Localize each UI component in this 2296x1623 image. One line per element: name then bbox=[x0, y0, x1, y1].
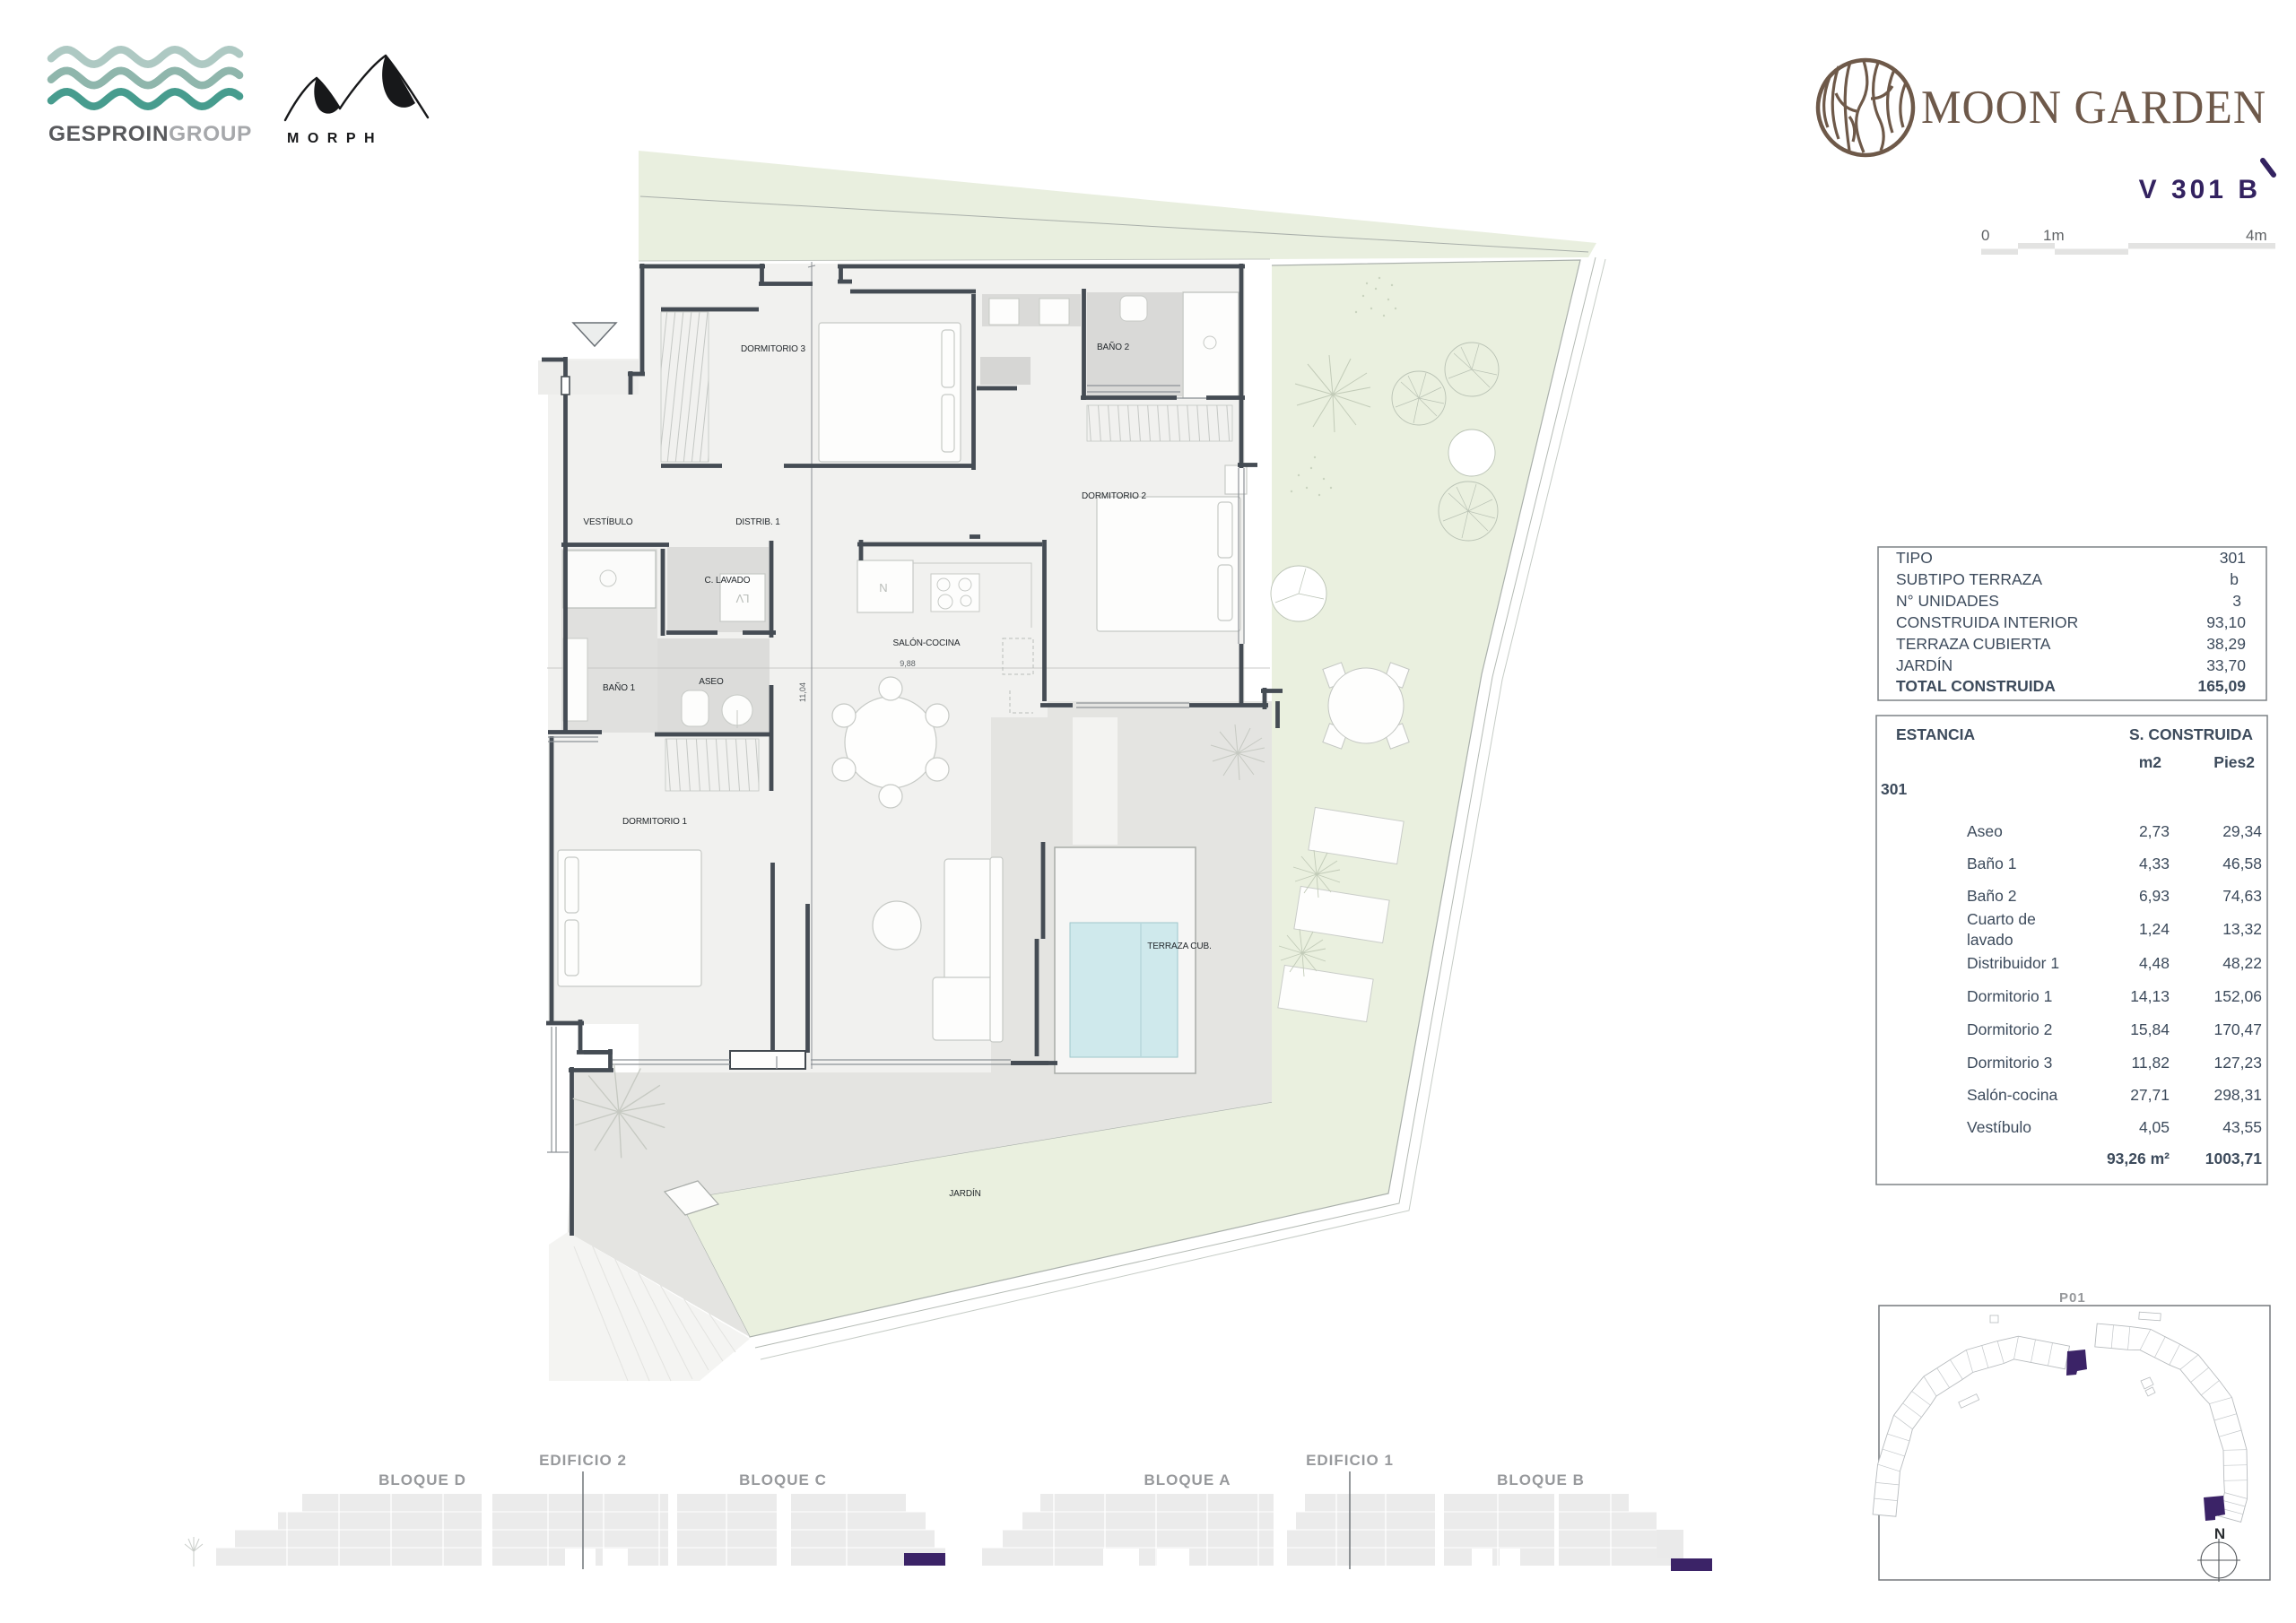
svg-text:P01: P01 bbox=[2059, 1290, 2086, 1306]
svg-text:2,73: 2,73 bbox=[2139, 822, 2170, 840]
svg-text:13,32: 13,32 bbox=[2222, 920, 2262, 938]
svg-text:DORMITORIO 2: DORMITORIO 2 bbox=[1082, 491, 1146, 501]
svg-text:MORPH: MORPH bbox=[287, 131, 383, 146]
svg-text:27,71: 27,71 bbox=[2130, 1086, 2170, 1104]
svg-text:15,84: 15,84 bbox=[2130, 1020, 2170, 1038]
svg-text:N: N bbox=[879, 581, 887, 595]
svg-text:38,29: 38,29 bbox=[2206, 635, 2246, 653]
svg-text:TERRAZA CUBIERTA: TERRAZA CUBIERTA bbox=[1896, 635, 2051, 653]
svg-text:1m: 1m bbox=[2043, 227, 2065, 244]
svg-text:301: 301 bbox=[2220, 549, 2246, 567]
svg-text:BLOQUE C: BLOQUE C bbox=[739, 1471, 827, 1488]
svg-text:C. LAVADO: C. LAVADO bbox=[705, 576, 751, 586]
svg-text:EDIFICIO 1: EDIFICIO 1 bbox=[1306, 1452, 1394, 1469]
svg-text:N° UNIDADES: N° UNIDADES bbox=[1896, 592, 1999, 610]
svg-text:SUBTIPO TERRAZA: SUBTIPO TERRAZA bbox=[1896, 570, 2042, 588]
svg-text:Distribuidor 1: Distribuidor 1 bbox=[1967, 954, 2059, 972]
svg-text:GESPROINGROUP: GESPROINGROUP bbox=[48, 122, 252, 146]
svg-text:33,70: 33,70 bbox=[2206, 656, 2246, 674]
svg-text:Vestíbulo: Vestíbulo bbox=[1967, 1118, 2031, 1136]
svg-text:Cuarto de: Cuarto de bbox=[1967, 910, 2036, 928]
svg-text:TIPO: TIPO bbox=[1896, 549, 1933, 567]
svg-text:Dormitorio 2: Dormitorio 2 bbox=[1967, 1020, 2052, 1038]
svg-text:1,24: 1,24 bbox=[2139, 920, 2170, 938]
svg-text:JARDÍN: JARDÍN bbox=[1896, 656, 1952, 674]
svg-text:BAÑO 2: BAÑO 2 bbox=[1097, 341, 1130, 352]
svg-text:Baño 2: Baño 2 bbox=[1967, 887, 2016, 905]
svg-text:BLOQUE D: BLOQUE D bbox=[378, 1471, 466, 1488]
svg-text:BLOQUE A: BLOQUE A bbox=[1144, 1471, 1231, 1488]
svg-text:CONSTRUIDA INTERIOR: CONSTRUIDA INTERIOR bbox=[1896, 613, 2078, 631]
svg-text:DISTRIB. 1: DISTRIB. 1 bbox=[735, 517, 780, 527]
svg-text:BAÑO 1: BAÑO 1 bbox=[603, 681, 636, 693]
svg-text:14,13: 14,13 bbox=[2130, 987, 2170, 1005]
svg-text:11,04: 11,04 bbox=[798, 682, 807, 702]
svg-text:lavado: lavado bbox=[1967, 931, 2013, 949]
svg-text:S. CONSTRUIDA: S. CONSTRUIDA bbox=[2129, 725, 2253, 743]
svg-text:DORMITORIO 3: DORMITORIO 3 bbox=[741, 344, 805, 354]
svg-text:Dormitorio 3: Dormitorio 3 bbox=[1967, 1054, 2052, 1072]
svg-text:298,31: 298,31 bbox=[2213, 1086, 2262, 1104]
svg-text:EDIFICIO 2: EDIFICIO 2 bbox=[539, 1452, 627, 1469]
svg-text:165,09: 165,09 bbox=[2197, 677, 2246, 695]
svg-text:ASEO: ASEO bbox=[699, 677, 724, 687]
svg-text:93,10: 93,10 bbox=[2206, 613, 2246, 631]
svg-text:4m: 4m bbox=[2246, 227, 2267, 244]
svg-text:4,33: 4,33 bbox=[2139, 855, 2170, 872]
svg-text:SALÓN-COCINA: SALÓN-COCINA bbox=[893, 637, 961, 648]
svg-text:152,06: 152,06 bbox=[2213, 987, 2262, 1005]
svg-text:43,55: 43,55 bbox=[2222, 1118, 2262, 1136]
svg-text:Baño 1: Baño 1 bbox=[1967, 855, 2016, 872]
svg-text:Aseo: Aseo bbox=[1967, 822, 2003, 840]
svg-text:N: N bbox=[2214, 1525, 2225, 1542]
svg-text:LV: LV bbox=[735, 592, 749, 605]
svg-text:127,23: 127,23 bbox=[2213, 1054, 2262, 1072]
svg-text:b: b bbox=[2230, 570, 2239, 588]
svg-text:Pies2: Pies2 bbox=[2213, 753, 2255, 771]
svg-text:BLOQUE B: BLOQUE B bbox=[1497, 1471, 1585, 1488]
svg-text:3: 3 bbox=[2232, 592, 2241, 610]
svg-text:TOTAL CONSTRUIDA: TOTAL CONSTRUIDA bbox=[1896, 677, 2056, 695]
svg-text:1003,71: 1003,71 bbox=[2205, 1150, 2263, 1167]
svg-text:V 301 B: V 301 B bbox=[2139, 175, 2261, 204]
svg-text:4,48: 4,48 bbox=[2139, 954, 2170, 972]
svg-text:0: 0 bbox=[1981, 227, 1989, 244]
svg-text:46,58: 46,58 bbox=[2222, 855, 2262, 872]
svg-text:JARDÍN: JARDÍN bbox=[949, 1187, 981, 1199]
svg-text:VESTÍBULO: VESTÍBULO bbox=[583, 516, 633, 527]
svg-text:ESTANCIA: ESTANCIA bbox=[1896, 725, 1976, 743]
svg-text:93,26 m²: 93,26 m² bbox=[2107, 1150, 2170, 1167]
svg-text:301: 301 bbox=[1881, 780, 1907, 798]
svg-text:74,63: 74,63 bbox=[2222, 887, 2262, 905]
svg-text:48,22: 48,22 bbox=[2222, 954, 2262, 972]
svg-text:Salón-cocina: Salón-cocina bbox=[1967, 1086, 2057, 1104]
svg-text:11,82: 11,82 bbox=[2132, 1054, 2170, 1072]
svg-text:9,88: 9,88 bbox=[900, 659, 916, 668]
svg-text:MOON GARDEN: MOON GARDEN bbox=[1921, 82, 2266, 134]
svg-text:4,05: 4,05 bbox=[2139, 1118, 2170, 1136]
svg-text:TERRAZA CUB.: TERRAZA CUB. bbox=[1147, 942, 1212, 951]
svg-text:m2: m2 bbox=[2139, 753, 2162, 771]
svg-text:DORMITORIO 1: DORMITORIO 1 bbox=[622, 817, 687, 827]
svg-text:170,47: 170,47 bbox=[2213, 1020, 2262, 1038]
svg-text:Dormitorio 1: Dormitorio 1 bbox=[1967, 987, 2052, 1005]
svg-text:29,34: 29,34 bbox=[2222, 822, 2262, 840]
svg-text:6,93: 6,93 bbox=[2139, 887, 2170, 905]
